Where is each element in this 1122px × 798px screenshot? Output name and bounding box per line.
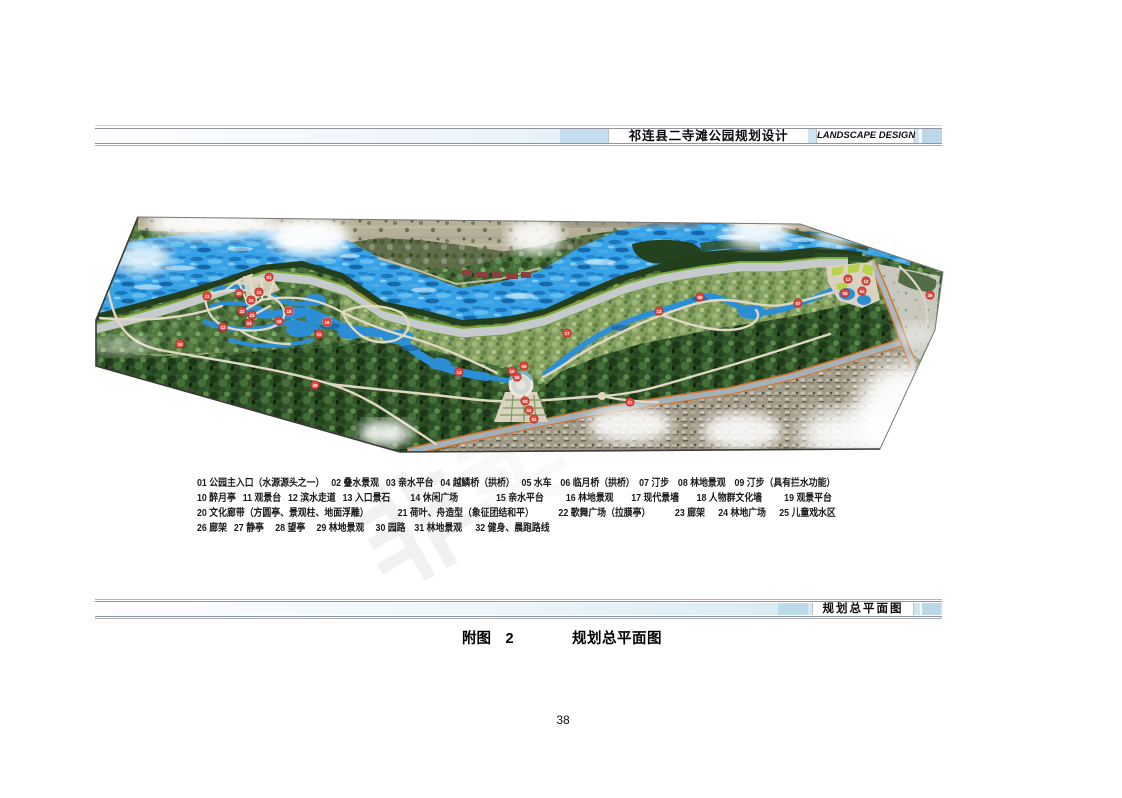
svg-text:21: 21: [256, 290, 262, 295]
svg-text:07: 07: [795, 301, 801, 306]
svg-text:24: 24: [246, 321, 252, 326]
svg-text:26: 26: [927, 293, 933, 298]
svg-text:23: 23: [249, 313, 255, 318]
svg-text:22: 22: [239, 309, 245, 314]
svg-text:01: 01: [266, 275, 272, 280]
svg-text:04: 04: [859, 289, 865, 294]
svg-text:11: 11: [205, 294, 210, 299]
svg-text:14: 14: [456, 370, 462, 375]
svg-text:15: 15: [316, 332, 322, 337]
svg-text:30: 30: [177, 342, 183, 347]
svg-text:16: 16: [324, 320, 330, 325]
svg-text:06: 06: [697, 295, 703, 300]
svg-text:20: 20: [236, 291, 242, 296]
svg-text:25: 25: [248, 298, 254, 303]
svg-text:12: 12: [863, 279, 869, 284]
svg-text:12: 12: [220, 325, 226, 330]
svg-text:17: 17: [564, 331, 570, 336]
svg-text:19: 19: [276, 319, 282, 324]
svg-text:13: 13: [845, 277, 851, 282]
svg-text:29: 29: [312, 383, 318, 388]
svg-text:05: 05: [842, 291, 848, 296]
svg-text:18: 18: [286, 309, 292, 314]
